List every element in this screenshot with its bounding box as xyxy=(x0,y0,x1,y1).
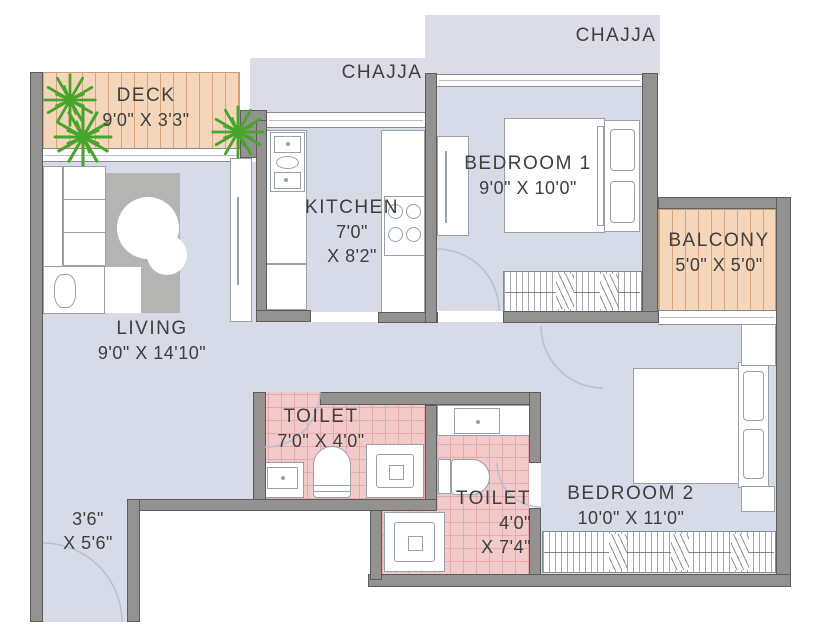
balcony-name: BALCONY xyxy=(668,229,769,253)
toilet1-wc xyxy=(313,446,351,498)
kitchen-label: KITCHEN 7'0" X 8'2" xyxy=(305,196,399,268)
bed2-headboard xyxy=(738,362,769,488)
living-name: LIVING xyxy=(98,317,206,341)
wall-right-outer xyxy=(776,197,791,587)
chajja-kitchen-label: CHAJJA xyxy=(342,61,423,85)
deck-dims: 9'0" X 3'3" xyxy=(102,108,189,132)
wall-toilet1-left xyxy=(253,392,266,500)
toilet2-name: TOILET xyxy=(413,487,531,511)
kitchen-dims-1: 7'0" xyxy=(305,220,399,244)
toilet1-name: TOILET xyxy=(277,405,364,429)
wall-entry-right xyxy=(127,499,140,622)
kitchen-cabinet-lower xyxy=(265,264,307,310)
bed2-side-table-bottom xyxy=(741,486,775,512)
sofa-seat xyxy=(63,166,106,266)
kitchen-sink xyxy=(270,132,305,192)
chajja-text: CHAJJA xyxy=(342,61,423,85)
kitchen-dims-2: X 8'2" xyxy=(305,244,399,268)
living-dims: 9'0" X 14'10" xyxy=(98,341,206,365)
toilet2-dims-2: X 7'4" xyxy=(413,535,531,559)
kitchen-window xyxy=(267,112,425,128)
bedroom2-dims: 10'0" X 11'0" xyxy=(567,506,695,530)
chajja-text: CHAJJA xyxy=(576,24,657,48)
bedroom1-label: BEDROOM 1 9'0" X 10'0" xyxy=(464,152,592,200)
bedroom1-window xyxy=(437,74,642,87)
lamp xyxy=(54,274,76,308)
deck-name: DECK xyxy=(102,84,189,108)
bed2-side-table-top xyxy=(741,324,776,366)
coffee-table xyxy=(102,267,141,313)
tv-cabinet xyxy=(230,158,252,322)
balcony-label: BALCONY 5'0" X 5'0" xyxy=(668,229,769,277)
bed2-mattress xyxy=(633,368,739,484)
wall-kitchen-bedroom1 xyxy=(425,73,437,323)
wall-toilet2-right-upper xyxy=(529,392,541,463)
wall-left-outer xyxy=(30,72,43,622)
wall-bottom-outer xyxy=(368,574,791,587)
round-table-small xyxy=(147,235,187,275)
wall-living-bottom xyxy=(127,499,437,511)
wall-kitchen-bottom-left xyxy=(256,310,311,322)
toilet2-dims-1: 4'0" xyxy=(413,511,531,535)
balcony-slider-window xyxy=(658,310,776,325)
wall-bedroom1-right xyxy=(642,73,658,319)
toilet2-label: TOILET 4'0" X 7'4" xyxy=(413,487,531,559)
bedroom1-name: BEDROOM 1 xyxy=(464,152,592,176)
entry-dims-2: X 5'6" xyxy=(63,531,113,555)
wall-toilet2-left xyxy=(370,510,382,580)
bed1-board xyxy=(597,126,604,226)
entry-label: 3'6" X 5'6" xyxy=(63,507,113,555)
wall-toilets-top xyxy=(320,392,540,405)
wall-kitchen-living xyxy=(256,120,267,313)
deck-slider-window xyxy=(43,148,240,162)
wall-bedroom1-bottom xyxy=(503,311,659,323)
toilet1-sink xyxy=(261,462,304,498)
chajja-bedroom-label: CHAJJA xyxy=(576,24,657,48)
entry-dims-1: 3'6" xyxy=(63,507,113,531)
toilet1-label: TOILET 7'0" X 4'0" xyxy=(277,405,364,453)
floor-plan: CHAJJA CHAJJA DECK 9'0" X 3'3" KITCHEN 7… xyxy=(0,0,813,635)
balcony-dims: 5'0" X 5'0" xyxy=(668,253,769,277)
deck-label: DECK 9'0" X 3'3" xyxy=(102,84,189,132)
toilet2-sink xyxy=(454,408,500,434)
kitchen-name: KITCHEN xyxy=(305,196,399,220)
bedroom2-wardrobe xyxy=(542,531,776,573)
bedroom2-label: BEDROOM 2 10'0" X 11'0" xyxy=(567,482,695,530)
wall-toilet-divider xyxy=(425,405,437,500)
bedroom2-name: BEDROOM 2 xyxy=(567,482,695,506)
bedroom1-dims: 9'0" X 10'0" xyxy=(464,176,592,200)
bedroom1-wardrobe xyxy=(503,271,642,312)
bed1-headboard xyxy=(604,120,640,232)
toilet1-dims: 7'0" X 4'0" xyxy=(277,429,364,453)
living-label: LIVING 9'0" X 14'10" xyxy=(98,317,206,365)
wall-balcony-top xyxy=(658,197,791,209)
